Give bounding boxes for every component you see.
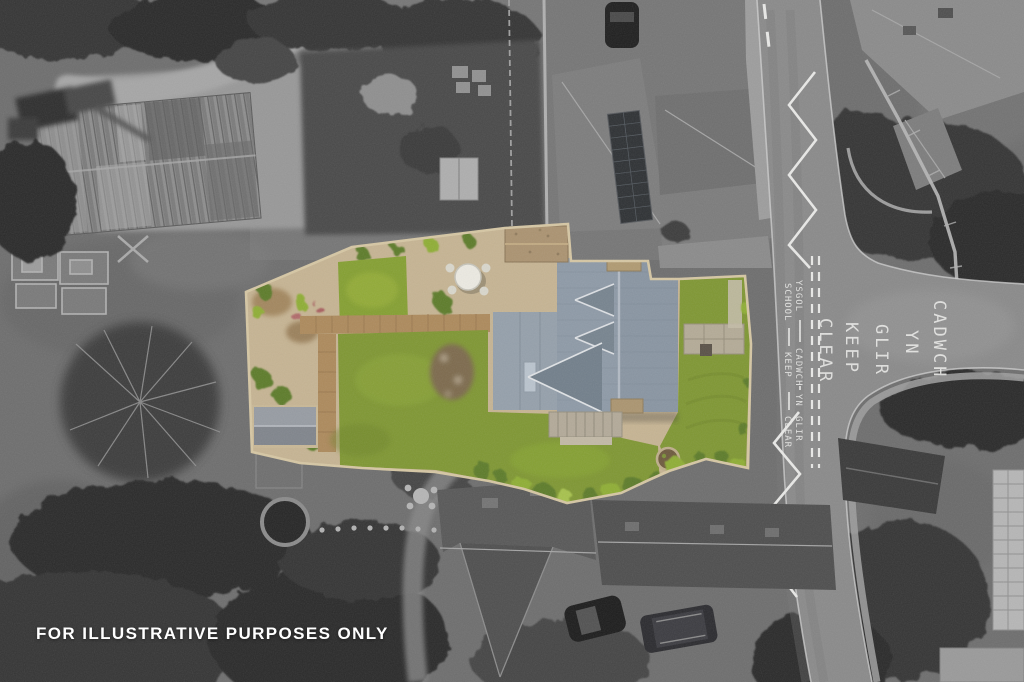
aerial-photo-canvas: CLEAR KEEP GLIR YN CADWCH SCHOOL KEEP CL…: [0, 0, 1024, 682]
caption-text: FOR ILLUSTRATIVE PURPOSES ONLY: [36, 624, 389, 644]
photo-grain: [0, 0, 1024, 682]
aerial-photo: CLEAR KEEP GLIR YN CADWCH SCHOOL KEEP CL…: [0, 0, 1024, 682]
